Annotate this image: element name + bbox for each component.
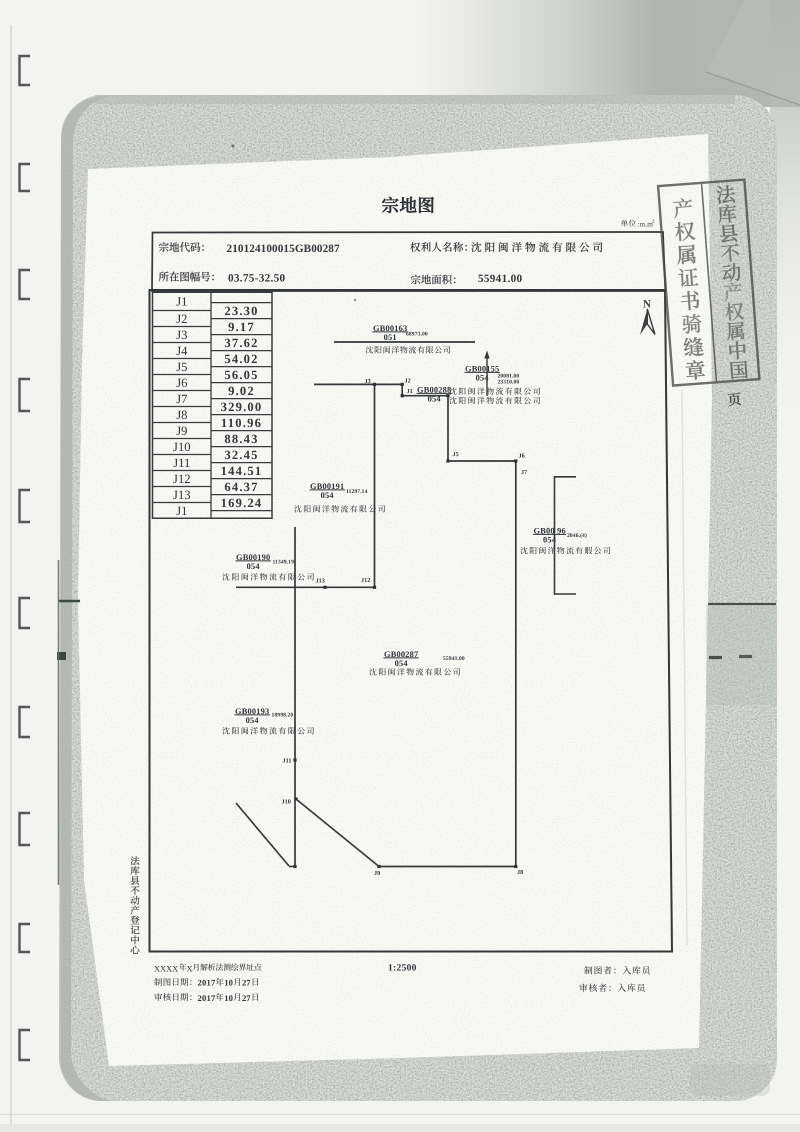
svg-text:J8: J8	[176, 408, 187, 422]
svg-text:X: X	[187, 964, 193, 973]
svg-text:1:2500: 1:2500	[388, 963, 417, 973]
svg-text:54.02: 54.02	[224, 352, 258, 366]
svg-text:J8: J8	[517, 869, 523, 876]
svg-text:20081.00: 20081.00	[498, 373, 520, 379]
svg-text:110.96: 110.96	[221, 416, 262, 430]
svg-text:J11: J11	[173, 456, 190, 470]
svg-text:J5: J5	[453, 451, 459, 458]
svg-text:054: 054	[247, 562, 261, 571]
svg-text:27: 27	[242, 978, 251, 988]
svg-text:23.30: 23.30	[224, 304, 258, 318]
svg-text:J3: J3	[365, 378, 371, 385]
svg-text:88.43: 88.43	[224, 432, 258, 446]
svg-text:J12: J12	[361, 577, 370, 584]
svg-text:10: 10	[224, 978, 233, 988]
svg-text:J9: J9	[176, 424, 187, 438]
svg-text:J6: J6	[519, 452, 525, 459]
svg-text:054: 054	[428, 395, 442, 404]
svg-text:054: 054	[476, 374, 490, 383]
svg-text:J7: J7	[176, 392, 187, 406]
svg-text:J1: J1	[176, 295, 187, 309]
svg-text:03.75-32.50: 03.75-32.50	[228, 272, 285, 284]
svg-text:27: 27	[242, 993, 251, 1003]
svg-text:054: 054	[246, 716, 260, 725]
svg-text:11349.19: 11349.19	[273, 560, 295, 566]
svg-text:2017: 2017	[198, 993, 216, 1003]
svg-text:J2: J2	[176, 312, 187, 326]
svg-text:J11: J11	[283, 757, 292, 764]
svg-text:11297.14: 11297.14	[346, 489, 368, 495]
svg-text:68973.00: 68973.00	[406, 332, 428, 338]
svg-text:J10: J10	[173, 440, 191, 454]
svg-text:J1: J1	[176, 504, 187, 518]
svg-text:329.00: 329.00	[221, 400, 263, 414]
svg-text:J9: J9	[374, 870, 380, 877]
svg-text:18998.20: 18998.20	[272, 713, 294, 719]
svg-text:051: 051	[384, 333, 397, 342]
svg-text:J4: J4	[176, 344, 188, 358]
svg-text:10: 10	[224, 993, 233, 1003]
svg-text:N: N	[643, 298, 651, 310]
svg-text:054: 054	[543, 536, 557, 545]
svg-text:210124100015GB00287: 210124100015GB00287	[227, 243, 340, 255]
svg-text:9.17: 9.17	[228, 320, 255, 334]
svg-text:55941.00: 55941.00	[478, 273, 522, 285]
svg-text:2017: 2017	[198, 978, 216, 988]
svg-text:J13: J13	[316, 578, 325, 585]
svg-text:37.62: 37.62	[224, 336, 258, 350]
svg-text:64.37: 64.37	[224, 480, 258, 494]
svg-text:XXXX: XXXX	[154, 964, 178, 973]
svg-text:J13: J13	[173, 488, 191, 502]
svg-text:32.45: 32.45	[224, 448, 258, 462]
svg-text:J3: J3	[176, 328, 187, 342]
svg-text:55941.00: 55941.00	[443, 656, 465, 662]
svg-text:23310.00: 23310.00	[498, 380, 520, 386]
svg-text:J12: J12	[173, 472, 191, 486]
svg-text:J2: J2	[405, 377, 411, 384]
svg-text:J1: J1	[407, 388, 413, 395]
svg-text:56.05: 56.05	[224, 368, 258, 382]
svg-text:2846.(4): 2846.(4)	[567, 533, 587, 539]
svg-text:J6: J6	[176, 376, 187, 390]
svg-text:054: 054	[395, 659, 409, 668]
svg-text:169.24: 169.24	[221, 496, 263, 510]
svg-text:144.51: 144.51	[221, 464, 263, 478]
svg-text::m.m: :m.m	[638, 220, 654, 229]
svg-text:J7: J7	[521, 469, 527, 476]
svg-text:J5: J5	[176, 360, 187, 374]
svg-text:9.02: 9.02	[228, 384, 255, 398]
svg-text:054: 054	[321, 491, 335, 500]
svg-text:J10: J10	[282, 799, 291, 806]
